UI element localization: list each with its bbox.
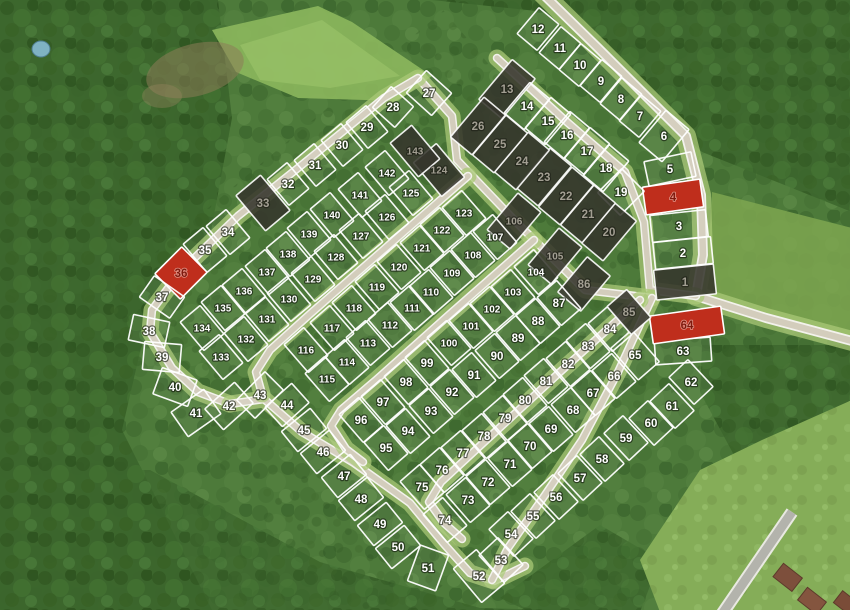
aerial-plot-map: 1234567891011121314151617181920212223242…: [0, 0, 850, 610]
plot-number-label: 96: [355, 415, 368, 427]
map-canvas: 1234567891011121314151617181920212223242…: [0, 0, 850, 610]
plot-number-label: 56: [550, 492, 563, 504]
plot-number-label: 53: [495, 555, 508, 567]
plot-number-label: 122: [434, 226, 451, 237]
plot-number-label: 54: [505, 529, 518, 541]
plot-number-label: 86: [578, 279, 591, 291]
plot-number-label: 141: [352, 191, 369, 202]
plot-number-label: 139: [301, 230, 318, 241]
plot-number-label: 132: [238, 335, 255, 346]
plot-number-label: 27: [423, 88, 436, 100]
plot-number-label: 51: [422, 563, 435, 575]
plot-number-label: 98: [400, 377, 413, 389]
plot-number-label: 42: [223, 401, 236, 413]
plot-number-label: 85: [623, 307, 636, 319]
plot-number-label: 57: [574, 473, 587, 485]
plot-number-label: 123: [456, 209, 473, 220]
plot-number-label: 58: [596, 454, 609, 466]
plot-number-label: 16: [561, 130, 574, 142]
plot-number-label: 45: [298, 425, 311, 437]
plot-number-label: 127: [353, 232, 370, 243]
plot-number-label: 23: [538, 172, 551, 184]
plot-number-label: 20: [603, 227, 616, 239]
dirt-clearing-small: [142, 84, 182, 108]
plot-number-label: 29: [361, 122, 374, 134]
plot-number-label: 74: [439, 515, 452, 527]
plot-number-label: 50: [392, 542, 405, 554]
plot-number-label: 128: [328, 253, 345, 264]
plot-number-label: 38: [143, 326, 156, 338]
plot-number-label: 41: [190, 408, 203, 420]
plot-number-label: 131: [259, 315, 276, 326]
plot-number-label: 95: [380, 443, 393, 455]
plot-number-label: 66: [608, 371, 621, 383]
plot-number-label: 135: [215, 304, 232, 315]
plot-number-label: 70: [524, 441, 537, 453]
plot-number-label: 3: [676, 221, 682, 233]
plot-number-label: 48: [355, 494, 368, 506]
plot-number-label: 140: [324, 211, 341, 222]
plot-number-label: 121: [414, 244, 431, 255]
plot-number-label: 18: [600, 163, 613, 175]
plot-number-label: 32: [282, 179, 295, 191]
plot-number-label: 17: [581, 146, 594, 158]
plot-number-label: 55: [527, 511, 540, 523]
plot-number-label: 31: [309, 160, 322, 172]
plot-number-label: 49: [374, 519, 387, 531]
plot-number-label: 35: [199, 245, 212, 257]
plot-number-label: 110: [423, 288, 440, 299]
plot-number-label: 142: [379, 169, 396, 180]
plot-number-label: 61: [666, 401, 679, 413]
plot-number-label: 75: [416, 482, 429, 494]
plot-number-label: 91: [468, 370, 481, 382]
plot-number-label: 82: [562, 359, 575, 371]
plot-number-label: 93: [425, 406, 438, 418]
plot-number-label: 40: [169, 382, 182, 394]
plot-number-label: 24: [516, 156, 529, 168]
plot-number-label: 69: [545, 424, 558, 436]
plot-number-label: 9: [598, 76, 604, 88]
plot-number-label: 79: [499, 413, 512, 425]
plot-number-label: 81: [540, 376, 553, 388]
plot-number-label: 14: [521, 101, 534, 113]
plot-number-label: 65: [629, 350, 642, 362]
plot-number-label: 137: [259, 268, 276, 279]
plot-number-label: 28: [387, 102, 400, 114]
plot-number-label: 22: [560, 191, 573, 203]
plot-number-label: 39: [156, 352, 169, 364]
plot-number-label: 5: [667, 164, 674, 176]
plot-number-label: 120: [391, 263, 408, 274]
plot-number-label: 125: [403, 189, 420, 200]
plot-number-label: 44: [281, 400, 294, 412]
plot-number-label: 106: [506, 217, 523, 228]
plot-number-label: 46: [317, 447, 330, 459]
plot-number-label: 116: [298, 346, 315, 357]
plot-number-label: 8: [618, 94, 625, 106]
plot-number-label: 34: [222, 227, 235, 239]
plot-number-label: 113: [360, 339, 377, 350]
plot-number-label: 101: [463, 322, 480, 333]
plot-number-label: 90: [491, 351, 504, 363]
plot-number-label: 130: [281, 295, 298, 306]
plot-number-label: 37: [156, 292, 169, 304]
plot-number-label: 133: [213, 353, 230, 364]
plot-number-label: 63: [677, 346, 690, 358]
plot-number-label: 76: [436, 465, 449, 477]
plot-number-label: 118: [346, 304, 363, 315]
plot-number-label: 103: [505, 288, 522, 299]
plot-number-label: 2: [680, 248, 686, 260]
plot-number-label: 36: [175, 268, 188, 280]
plot-number-label: 84: [604, 324, 617, 336]
plot-number-label: 43: [254, 390, 267, 402]
plot-number-label: 115: [319, 375, 336, 386]
plot-number-label: 83: [582, 341, 595, 353]
pond: [32, 41, 50, 57]
plot-number-label: 109: [444, 269, 461, 280]
plot-number-label: 88: [532, 316, 545, 328]
plot-number-label: 13: [501, 84, 514, 96]
plot-number-label: 99: [421, 358, 434, 370]
plot-number-label: 19: [615, 187, 628, 199]
plot-number-label: 104: [528, 268, 545, 279]
plot-number-label: 10: [574, 60, 587, 72]
plot-number-label: 134: [194, 324, 211, 335]
plot-number-label: 107: [487, 233, 504, 244]
plot-number-label: 21: [582, 209, 595, 221]
plot-number-label: 97: [377, 397, 390, 409]
plot-number-label: 92: [446, 387, 459, 399]
plot-number-label: 94: [402, 426, 415, 438]
plot-number-label: 33: [257, 198, 270, 210]
plot-number-label: 114: [339, 358, 356, 369]
plot-number-label: 60: [645, 418, 658, 430]
plot-number-label: 15: [542, 116, 555, 128]
plot-number-label: 138: [280, 250, 297, 261]
plot-number-label: 25: [494, 139, 507, 151]
plot-number-label: 80: [519, 395, 532, 407]
plot-number-label: 59: [620, 433, 633, 445]
plot-number-label: 124: [431, 166, 448, 177]
plot-number-label: 126: [379, 213, 396, 224]
plot-number-label: 4: [670, 192, 677, 204]
plot-number-label: 119: [369, 283, 386, 294]
plot-number-label: 105: [547, 252, 564, 263]
plot-number-label: 26: [472, 121, 485, 133]
plot-number-label: 102: [484, 305, 501, 316]
plot-number-label: 47: [338, 471, 351, 483]
plot-number-label: 12: [532, 24, 545, 36]
plot-number-label: 52: [473, 571, 486, 583]
plot-number-label: 64: [681, 320, 694, 332]
plot-number-label: 7: [637, 111, 643, 123]
plot-number-label: 117: [324, 324, 341, 335]
plot-number-label: 100: [441, 339, 458, 350]
plot-number-label: 87: [553, 298, 566, 310]
plot-number-label: 73: [462, 495, 475, 507]
plot-number-label: 77: [457, 448, 470, 460]
plot-number-label: 78: [478, 431, 491, 443]
plot-number-label: 30: [336, 140, 349, 152]
plot-number-label: 129: [305, 275, 322, 286]
plot-number-label: 108: [465, 251, 482, 262]
plot-number-label: 89: [512, 333, 525, 345]
plot-number-label: 72: [482, 477, 495, 489]
plot-number-label: 112: [382, 321, 399, 332]
plot-number-label: 11: [554, 43, 567, 55]
plot-number-label: 1: [682, 277, 689, 289]
plot-number-label: 68: [567, 405, 580, 417]
plot-number-label: 6: [661, 131, 667, 143]
plot-number-label: 67: [587, 388, 600, 400]
plot-number-label: 62: [685, 377, 698, 389]
plot-number-label: 143: [407, 147, 424, 158]
plot-number-label: 136: [236, 287, 253, 298]
plot-number-label: 71: [504, 459, 517, 471]
plot-number-label: 111: [404, 304, 420, 315]
